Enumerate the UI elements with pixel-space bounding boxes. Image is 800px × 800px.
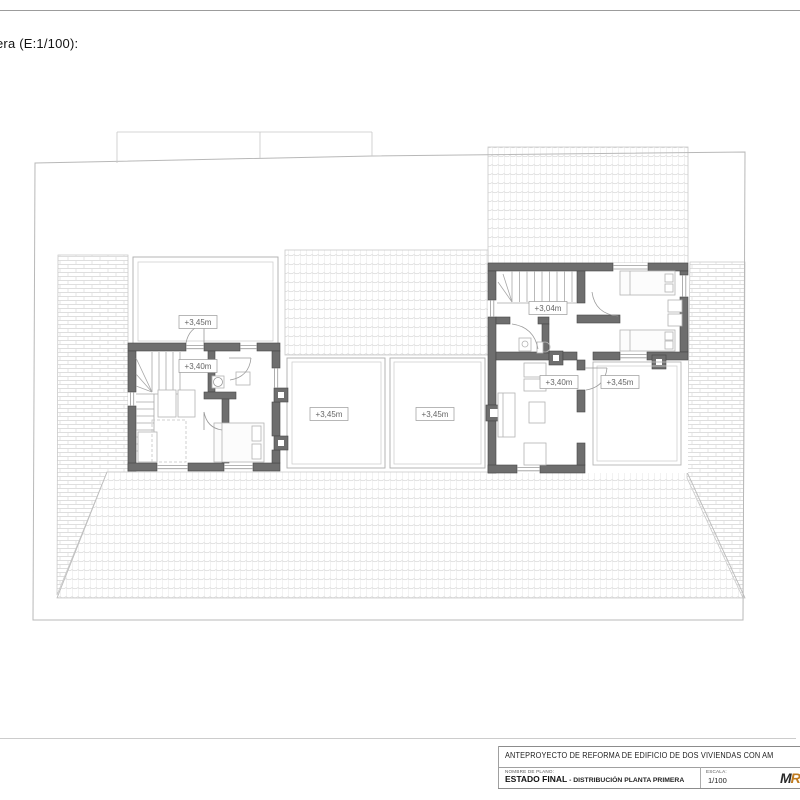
floor-plan-canvas: +3,45m +3,40m +3,45m +3,45m +3,04m +3,40… <box>0 0 800 800</box>
terrace-left <box>133 257 278 345</box>
plan-name: ESTADO FINAL - DISTRIBUCIÓN PLANTA PRIME… <box>505 774 684 784</box>
roof-top-right <box>488 147 688 263</box>
plan-name-suffix: - DISTRIBUCIÓN PLANTA PRIMERA <box>567 777 684 784</box>
scale-label: ESCALA: <box>706 769 727 774</box>
level-label-terrace-mid-left: +3,45m <box>316 410 343 419</box>
left-house <box>128 325 288 471</box>
title-block-line <box>498 746 499 788</box>
wall-post-window <box>553 355 559 361</box>
level-label-left-terrace: +3,45m <box>185 318 212 327</box>
title-block-line <box>498 788 800 789</box>
scale-value: 1/100 <box>708 776 727 785</box>
level-label-right-living: +3,40m <box>546 378 573 387</box>
logo-letter-m: M <box>780 770 791 786</box>
wall-post-window <box>278 392 284 398</box>
roof-bottom <box>57 472 745 598</box>
title-block-line <box>700 767 701 788</box>
level-label-terrace-mid-right: +3,45m <box>422 410 449 419</box>
project-title: ANTEPROYECTO DE REFORMA DE EDIFICIO DE D… <box>505 750 800 760</box>
level-label-left-house: +3,40m <box>185 362 212 371</box>
company-logo: MR <box>780 770 800 786</box>
logo-letter-r: R <box>791 770 800 786</box>
level-label-right-landing: +3,04m <box>535 304 562 313</box>
wall-post-window <box>278 440 284 446</box>
drawing-sheet: era (E:1/100): <box>0 0 800 800</box>
level-label-right-terrace: +3,45m <box>607 378 634 387</box>
title-block-line <box>498 767 800 768</box>
roof-band-middle <box>285 250 488 355</box>
right-house <box>486 263 688 473</box>
wall-post-window <box>490 409 498 417</box>
title-block-line <box>498 746 800 747</box>
